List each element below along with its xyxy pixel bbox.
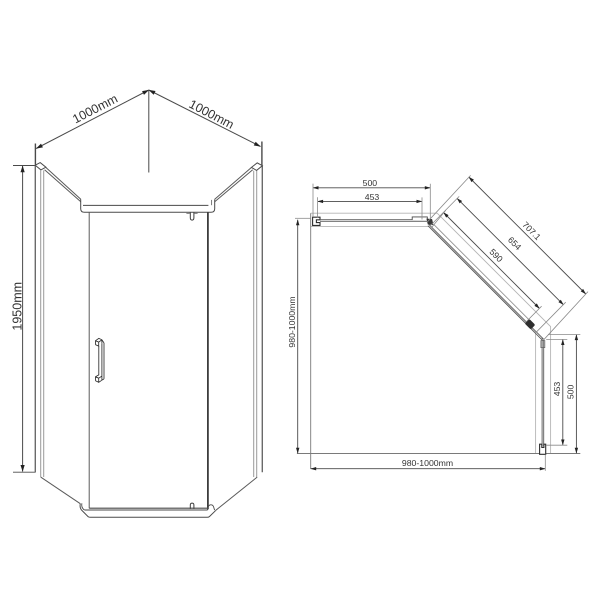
svg-text:453: 453 bbox=[552, 382, 562, 397]
svg-text:980-1000mm: 980-1000mm bbox=[287, 296, 297, 347]
svg-text:500: 500 bbox=[565, 384, 575, 399]
svg-text:500: 500 bbox=[363, 178, 378, 188]
svg-text:1950mm: 1950mm bbox=[10, 282, 24, 331]
svg-text:707.1: 707.1 bbox=[520, 220, 543, 243]
svg-text:453: 453 bbox=[365, 192, 380, 202]
svg-text:1000mm: 1000mm bbox=[187, 97, 237, 132]
svg-text:590: 590 bbox=[487, 247, 504, 264]
svg-text:980-1000mm: 980-1000mm bbox=[402, 458, 453, 468]
